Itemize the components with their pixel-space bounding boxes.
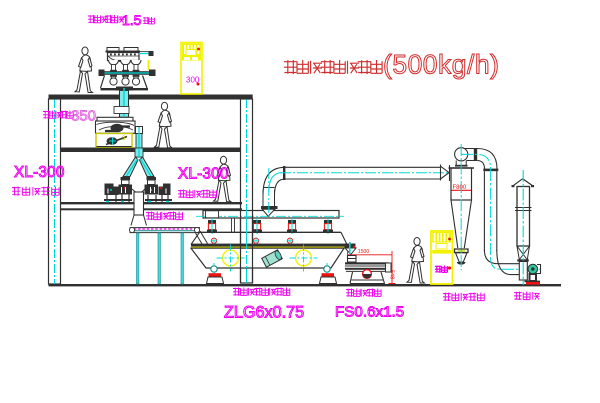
svg-text:ZLG6x0.75: ZLG6x0.75 — [224, 304, 304, 322]
svg-text:1500: 1500 — [358, 249, 369, 255]
svg-text:1.5: 1.5 — [122, 12, 142, 28]
svg-text:XL-300: XL-300 — [14, 164, 65, 181]
svg-text:XL-300: XL-300 — [178, 166, 229, 183]
svg-text:350: 350 — [71, 108, 96, 125]
svg-text:3: 3 — [122, 135, 126, 142]
svg-text:FS0.6x1.5: FS0.6x1.5 — [335, 304, 404, 321]
svg-text:(500kg/h): (500kg/h) — [383, 50, 499, 80]
